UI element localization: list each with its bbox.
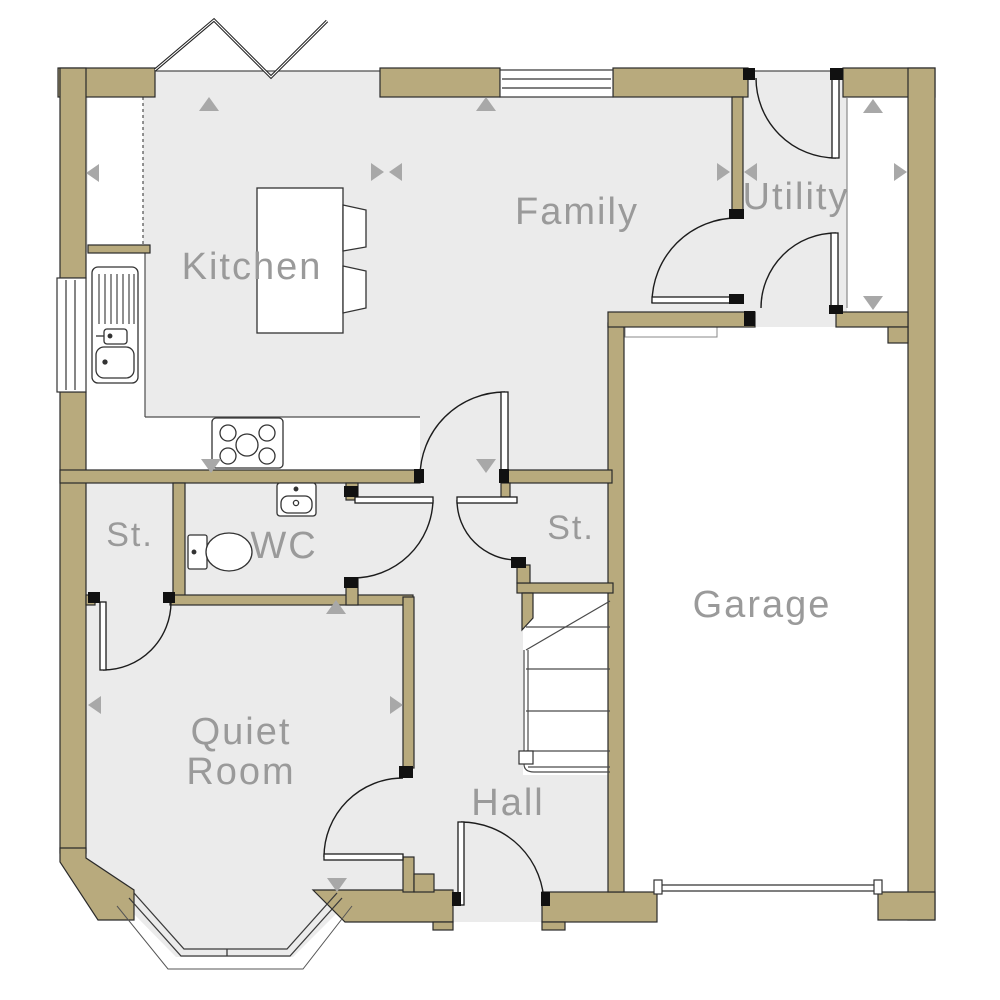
up-arrow-icon bbox=[199, 97, 219, 111]
bar-stool-2 bbox=[343, 266, 366, 313]
wall-top-2 bbox=[380, 68, 500, 97]
up-arrow-icon bbox=[476, 97, 496, 111]
down-arrow-icon bbox=[327, 878, 347, 892]
down-arrow-icon bbox=[863, 296, 883, 310]
bi-fold-doors bbox=[155, 20, 327, 77]
wall-left-1 bbox=[60, 68, 86, 278]
garage-wall-top-1 bbox=[608, 312, 755, 327]
left-arrow-icon bbox=[744, 163, 757, 181]
wall-left-2 bbox=[60, 392, 86, 853]
garage-door bbox=[654, 880, 882, 894]
utility-external-door-leaf bbox=[832, 78, 839, 158]
wc-left-wall bbox=[173, 483, 185, 597]
wc-bottom-wall bbox=[170, 595, 413, 605]
garage-wall-left bbox=[608, 323, 624, 892]
rear-window bbox=[500, 70, 613, 97]
down-arrow-icon bbox=[201, 459, 221, 473]
newel-post bbox=[519, 751, 533, 764]
quiet-room-door-leaf bbox=[324, 854, 403, 860]
st-left-door-leaf bbox=[100, 602, 106, 670]
left-arrow-icon bbox=[86, 164, 99, 182]
room-label-storage-left: St. bbox=[106, 518, 154, 554]
wall-top-3 bbox=[613, 68, 748, 97]
wc-door-leaf bbox=[355, 497, 433, 503]
jamb-stub-1 bbox=[501, 483, 510, 497]
utility-garage-door-leaf bbox=[831, 233, 838, 308]
room-label-quiet-room: Quiet Room bbox=[186, 713, 295, 793]
up-arrow-icon bbox=[326, 600, 346, 614]
right-arrow-icon bbox=[894, 163, 907, 181]
wall-step-2 bbox=[542, 922, 565, 930]
bar-stool-1 bbox=[343, 205, 366, 251]
room-label-storage-right: St. bbox=[547, 511, 595, 547]
quiet-room-right-wall bbox=[403, 597, 414, 768]
room-label-kitchen: Kitchen bbox=[182, 248, 323, 288]
hob-center-burner bbox=[236, 434, 258, 456]
room-label-utility: Utility bbox=[743, 178, 850, 218]
family-utility-wall bbox=[732, 97, 743, 218]
floor-plan-drawing bbox=[0, 0, 1000, 1000]
right-arrow-icon bbox=[371, 163, 384, 181]
right-arrow-icon bbox=[717, 163, 730, 181]
family-bottom-wall bbox=[503, 470, 612, 483]
room-label-wc: WC bbox=[250, 527, 317, 567]
toilet-cistern bbox=[188, 535, 207, 569]
kitchen-door-leaf bbox=[501, 392, 508, 477]
front-door-gap bbox=[453, 892, 545, 922]
st-right-door-leaf bbox=[457, 497, 517, 503]
left-arrow-icon bbox=[389, 163, 402, 181]
room-label-hall: Hall bbox=[471, 784, 544, 824]
utility-door-recess bbox=[748, 71, 843, 97]
bay-floor bbox=[120, 892, 350, 957]
family-utility-door-leaf bbox=[652, 297, 737, 303]
wall-garage-corner bbox=[878, 892, 935, 920]
left-arrow-icon bbox=[88, 696, 101, 714]
garage-door-gap bbox=[755, 312, 836, 327]
room-label-garage: Garage bbox=[693, 586, 832, 626]
right-arrow-icon bbox=[390, 696, 403, 714]
sink-tap bbox=[104, 329, 127, 344]
hall-step-block bbox=[414, 874, 434, 892]
kitchen-bottom-wall bbox=[60, 470, 420, 483]
utility-side-recess bbox=[847, 98, 908, 312]
floor-plan: KitchenFamilyUtilityGarageQuiet RoomHall… bbox=[0, 0, 1000, 1000]
stair-well bbox=[523, 593, 612, 775]
counter-divider-stub bbox=[88, 245, 150, 253]
st-right-bottom-wall bbox=[517, 583, 613, 593]
side-window bbox=[57, 278, 86, 392]
up-arrow-icon bbox=[863, 99, 883, 113]
quiet-room-wall-stub bbox=[403, 857, 414, 892]
wall-right bbox=[908, 68, 935, 920]
sink-bowl bbox=[96, 347, 134, 378]
garage-pier bbox=[888, 327, 908, 343]
toilet-bowl bbox=[206, 533, 252, 571]
wall-step-1 bbox=[433, 922, 453, 930]
room-label-family: Family bbox=[515, 193, 639, 233]
wall-front-right bbox=[542, 892, 657, 922]
down-arrow-icon bbox=[476, 459, 496, 473]
garage-wall-top-2 bbox=[836, 312, 908, 327]
